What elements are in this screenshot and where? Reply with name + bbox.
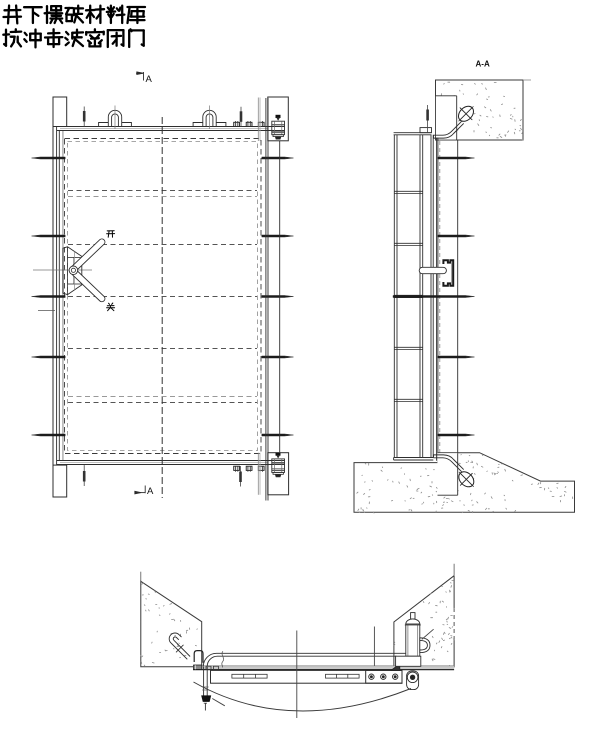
svg-text:A: A <box>147 486 154 497</box>
svg-text:A-A: A-A <box>476 60 490 69</box>
svg-text:A: A <box>146 74 153 85</box>
